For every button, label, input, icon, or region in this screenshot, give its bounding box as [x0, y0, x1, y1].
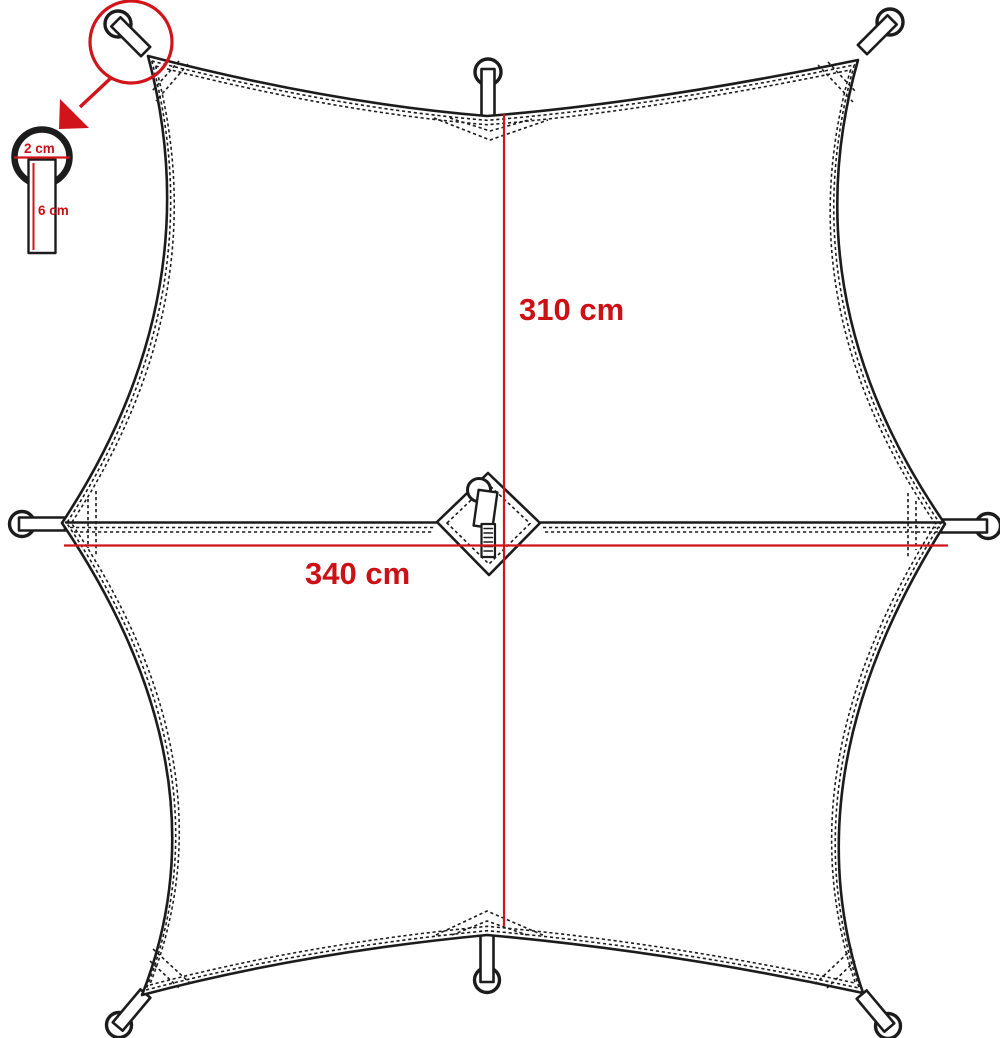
loop-left-middle: [10, 512, 66, 537]
loop-stem: [482, 69, 495, 117]
callout-arrow-line: [80, 77, 112, 107]
height-label: 310 cm: [519, 292, 624, 327]
diagram-canvas: 310 cm 340 cm 2 cm 6 cm: [0, 0, 1000, 1038]
width-label: 340 cm: [305, 556, 410, 591]
loop-top-left: [105, 11, 150, 56]
detail-callout: 2 cm 6 cm: [14, 1, 172, 253]
loop-stem: [941, 520, 987, 533]
loop-stem: [19, 518, 65, 531]
loop-diameter-label: 2 cm: [24, 141, 55, 156]
loop-bottom-left: [107, 989, 151, 1037]
loop-stem: [481, 934, 494, 982]
loop-length-label: 6 cm: [38, 203, 69, 218]
loop-top-middle: [475, 59, 501, 117]
tarp-dimension-diagram: 310 cm 340 cm 2 cm 6 cm: [0, 0, 1000, 1038]
loop-top-right: [858, 9, 903, 54]
loop-bottom-middle: [475, 934, 500, 993]
loop-bottom-right: [857, 990, 901, 1038]
detail-loop: 2 cm 6 cm: [14, 130, 70, 254]
loop-right-middle: [941, 514, 1000, 539]
zipper-pull-tab: [474, 490, 498, 528]
